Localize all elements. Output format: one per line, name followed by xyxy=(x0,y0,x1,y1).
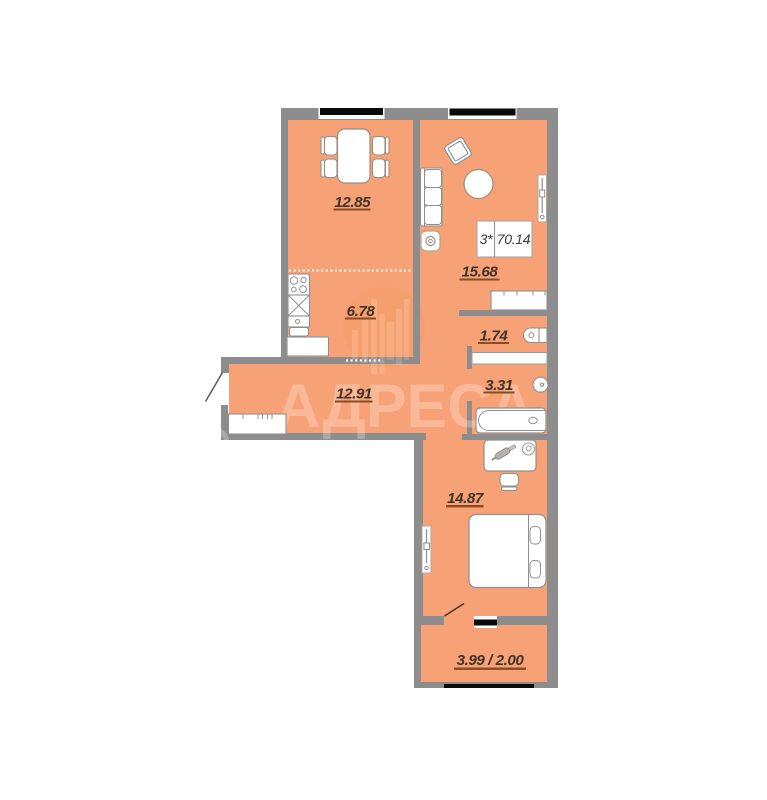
svg-text:15.68: 15.68 xyxy=(462,264,499,281)
svg-text:12.85: 12.85 xyxy=(334,194,371,211)
svg-text:1.74: 1.74 xyxy=(480,328,509,345)
svg-text:3.99 / 2.00: 3.99 / 2.00 xyxy=(457,652,525,669)
svg-text:3*: 3* xyxy=(480,231,493,247)
svg-text:70.14: 70.14 xyxy=(497,231,531,247)
svg-text:3.31: 3.31 xyxy=(485,377,513,394)
svg-text:14.87: 14.87 xyxy=(447,490,485,507)
svg-text:6.78: 6.78 xyxy=(347,303,376,320)
svg-text:12.91: 12.91 xyxy=(336,386,372,403)
